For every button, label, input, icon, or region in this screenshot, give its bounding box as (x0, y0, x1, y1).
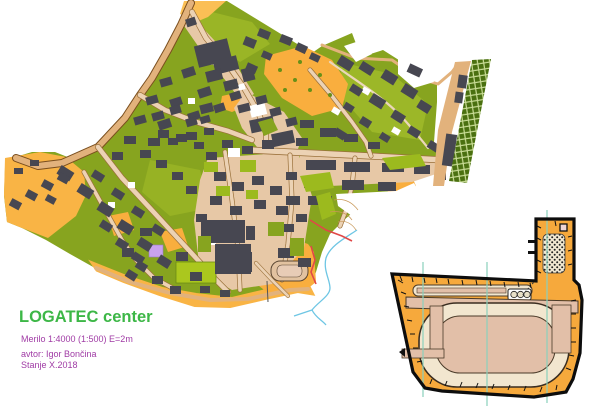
svg-text:LOGATEC center: LOGATEC center (19, 308, 153, 326)
svg-text:Stanje X.2018: Stanje X.2018 (21, 360, 78, 370)
svg-text:Merilo 1:4000 (1:500) E=2m: Merilo 1:4000 (1:500) E=2m (21, 334, 133, 344)
svg-text:avtor: Igor Bončina: avtor: Igor Bončina (21, 349, 97, 359)
